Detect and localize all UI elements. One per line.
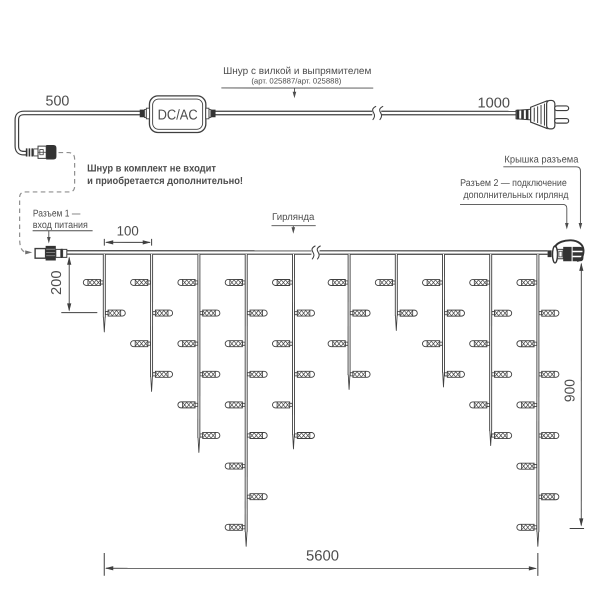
svg-text:вход питания: вход питания bbox=[33, 220, 88, 231]
svg-text:5600: 5600 bbox=[306, 549, 339, 565]
svg-text:Гирлянда: Гирлянда bbox=[272, 212, 315, 223]
svg-text:Разъем 1 —: Разъем 1 — bbox=[33, 208, 81, 219]
svg-text:(арт. 025887/арт. 025888): (арт. 025887/арт. 025888) bbox=[251, 76, 341, 85]
svg-text:500: 500 bbox=[46, 94, 70, 110]
svg-text:дополнительных гирлянд: дополнительных гирлянд bbox=[463, 190, 568, 201]
svg-text:Крышка разъема: Крышка разъема bbox=[504, 155, 578, 166]
svg-text:100: 100 bbox=[117, 223, 140, 238]
svg-text:DC/AC: DC/AC bbox=[158, 107, 198, 123]
svg-text:1000: 1000 bbox=[477, 95, 510, 111]
svg-text:200: 200 bbox=[49, 270, 65, 295]
svg-text:и приобретается дополнительно!: и приобретается дополнительно! bbox=[87, 176, 243, 187]
svg-text:900: 900 bbox=[563, 379, 579, 402]
svg-text:Разъем 2 — подключение: Разъем 2 — подключение bbox=[460, 178, 567, 189]
svg-text:Шнур в комплект не входит: Шнур в комплект не входит bbox=[87, 164, 216, 175]
